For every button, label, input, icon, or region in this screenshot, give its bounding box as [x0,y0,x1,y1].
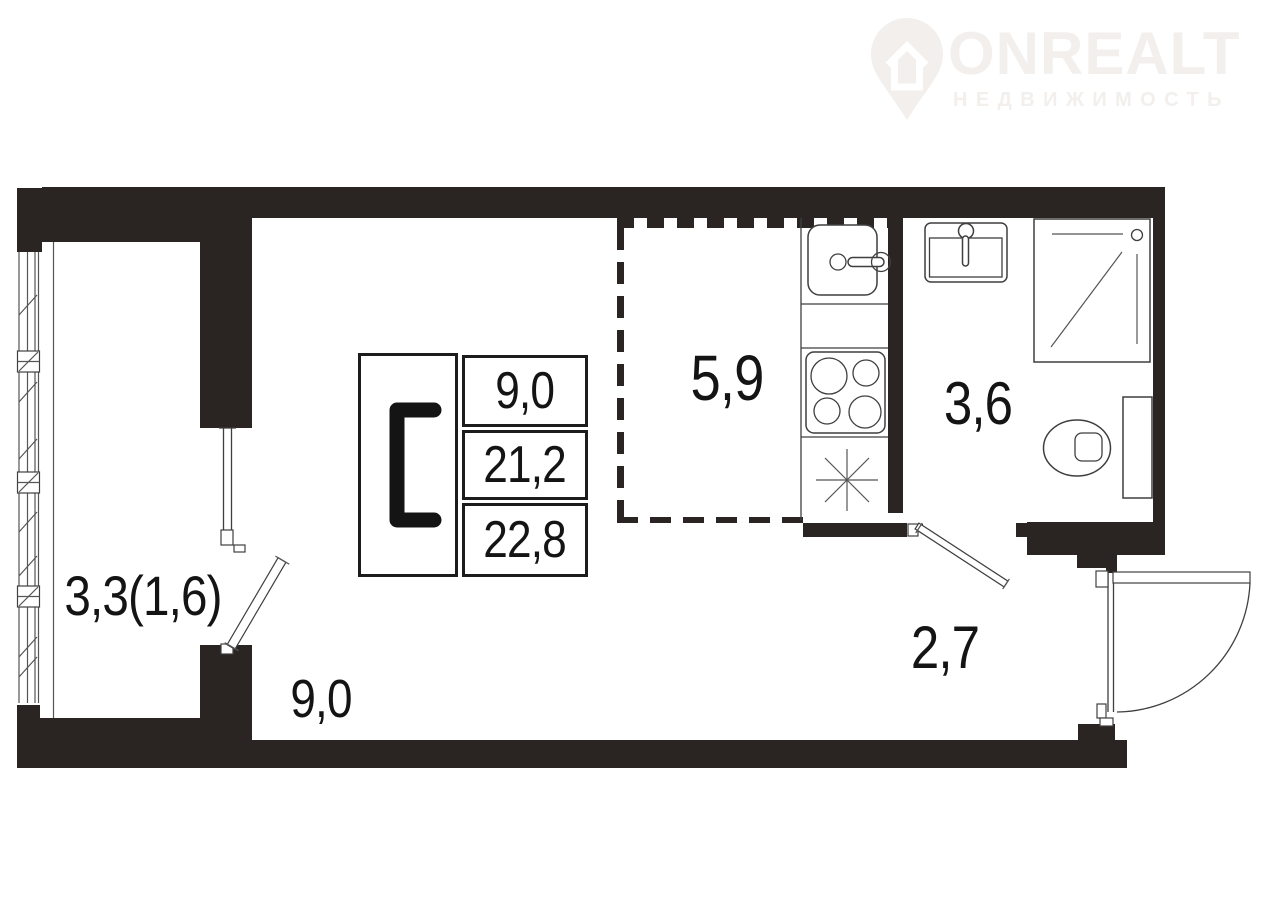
area-label-kitchen-zone: 5,9 [690,346,763,410]
fridge-asterisk-icon [816,449,878,511]
entry-door [1096,571,1250,726]
logo-brand-text: ONREALT [948,24,1241,84]
glazing-mullion [18,351,40,372]
legend-living-area-value: 21,2 [484,439,567,491]
bathroom-door [908,523,1009,589]
floor-plan-image: 5,9 3,6 2,7 9,0 3,3(1,6) С 9,0 21,2 22,8… [0,0,1269,910]
area-label-balcony: 3,3(1,6) [64,568,221,624]
legend-living-area-cell: 21,2 [462,430,588,500]
legend-room-area-cell: 9,0 [462,355,588,427]
studio-type-glyph [361,356,455,574]
floor-plan-drawing [0,0,1269,910]
stove-icon [806,352,885,433]
balcony-window [219,428,245,552]
glazing-mullion [18,586,40,607]
balcony-door [221,556,289,654]
legend-total-area-value: 22,8 [484,514,567,566]
balcony-glazing [18,242,54,718]
toilet-icon [1044,397,1153,498]
legend-total-area-cell: 22,8 [462,503,588,577]
house-location-pin-icon [868,16,946,122]
shower-icon [1034,219,1150,362]
legend-type-cell: С [358,353,458,577]
area-label-hallway: 2,7 [911,618,979,678]
logo-subtitle-text: НЕДВИЖИМОСТЬ [953,90,1230,110]
area-label-bathroom: 3,6 [944,374,1012,434]
bathroom-sink-icon [925,223,1007,282]
glazing-mullion [18,472,40,493]
legend-room-area-value: 9,0 [496,365,555,417]
kitchen-sink-icon [808,225,891,295]
area-label-main-room: 9,0 [290,672,351,726]
